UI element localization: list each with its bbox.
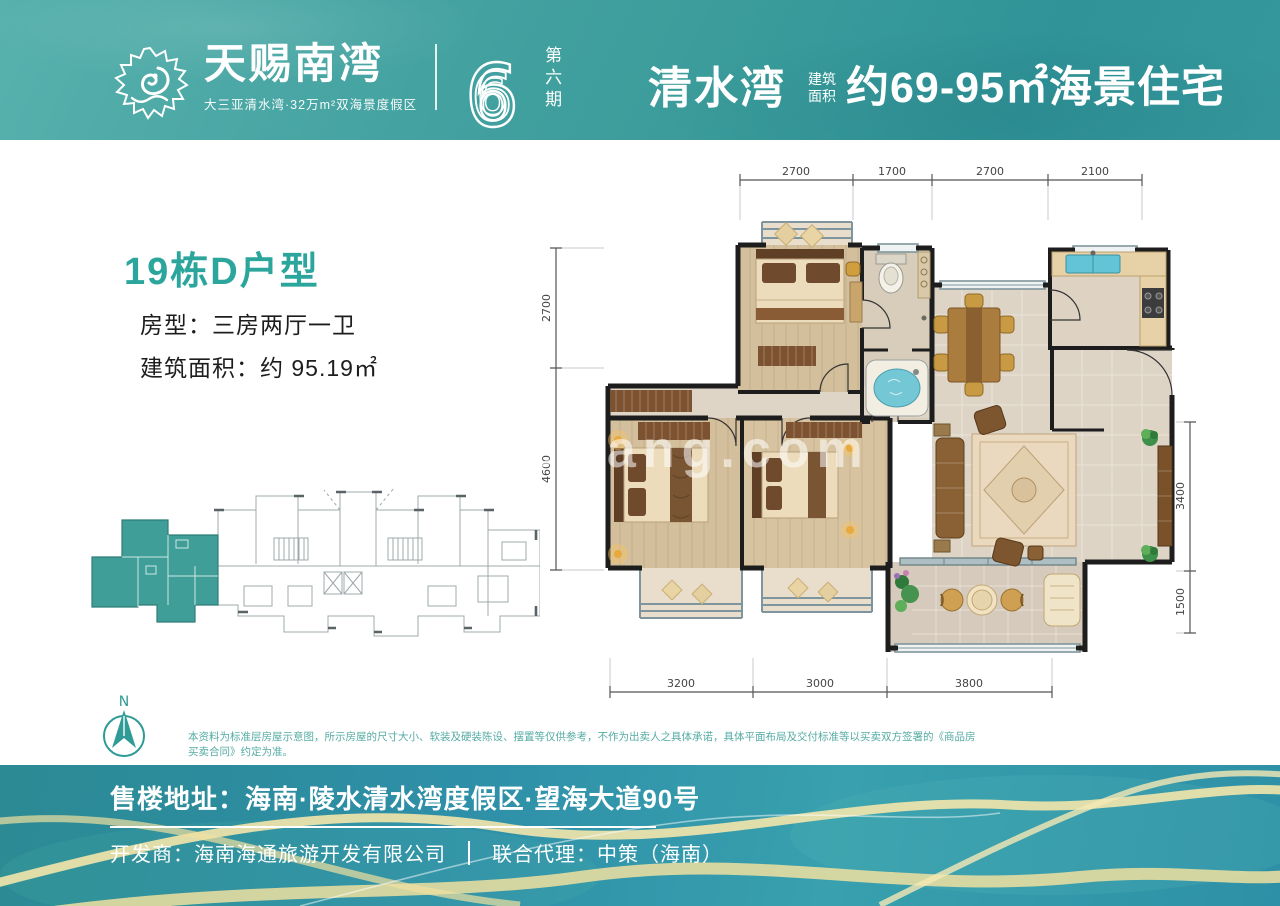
flyer-page: 天赐南湾 大三亚清水湾·32万m²双海景度假区 6 6 6 第六期 清水湾 建筑…	[0, 0, 1280, 906]
brand-divider	[435, 44, 437, 110]
dim-top-2: 1700	[878, 165, 906, 178]
dim-top-1: 2700	[782, 165, 810, 178]
svg-text:N: N	[119, 694, 129, 710]
agent-line: 联合代理：中策（海南）	[492, 838, 723, 867]
area-label-top: 建筑	[808, 71, 836, 88]
dim-left-2: 4600	[540, 455, 553, 483]
phase-label: 第六期	[539, 46, 564, 112]
brand-title: 天赐南湾	[204, 40, 417, 88]
dim-right-1: 3400	[1174, 482, 1187, 510]
unit-layout: 房型：三房两厅一卫	[140, 306, 356, 340]
brand-text: 天赐南湾 大三亚清水湾·32万m²双海景度假区	[204, 40, 417, 113]
footer-row2: 开发商：海南海通旅游开发有限公司 联合代理：中策（海南）	[110, 838, 723, 867]
dim-bottom-1: 3200	[667, 677, 695, 690]
footer-vertical-bar	[468, 841, 470, 865]
unit-title: 19栋D户型	[124, 240, 320, 295]
dim-left-1: 2700	[540, 294, 553, 322]
footer-band: 售楼地址：海南·陵水清水湾度假区·望海大道90号 开发商：海南海通旅游开发有限公…	[0, 765, 1280, 906]
disclaimer-text: 本资料为标准层房屋示意图，所示房屋的尺寸大小、软装及硬装陈设、摆置等仅供参考，不…	[188, 729, 978, 759]
sales-address: 售楼地址：海南·陵水清水湾度假区·望海大道90号	[110, 779, 723, 816]
floor-plan: 2700 1700 2700 2100 2700 4600 3400 1500 …	[520, 150, 1220, 710]
footer-rule	[110, 826, 656, 828]
dim-top-3: 2700	[976, 165, 1004, 178]
area-label-bottom: 面积	[808, 88, 836, 105]
headline-text: 约69-95㎡海景住宅	[846, 53, 1225, 115]
phase-number-six: 6 6 6	[451, 40, 533, 132]
header-banner: 天赐南湾 大三亚清水湾·32万m²双海景度假区 6 6 6 第六期 清水湾 建筑…	[0, 0, 1280, 140]
dim-bottom-2: 3000	[806, 677, 834, 690]
dragon-logo-icon	[108, 40, 192, 124]
brand-tagline: 大三亚清水湾·32万m²双海景度假区	[204, 94, 417, 113]
brand-block: 天赐南湾 大三亚清水湾·32万m²双海景度假区 6 6 6 第六期	[108, 40, 564, 132]
north-arrow-icon: N	[92, 690, 156, 762]
keyplan-highlighted-unit	[92, 520, 218, 622]
headline-location: 清水湾	[648, 52, 786, 116]
developer-line: 开发商：海南海通旅游开发有限公司	[110, 838, 446, 867]
headline-area-label: 建筑 面积	[808, 71, 836, 105]
building-keyplan	[88, 446, 540, 678]
dim-right-2: 1500	[1174, 588, 1187, 616]
dim-top-4: 2100	[1081, 165, 1109, 178]
dim-bottom-3: 3800	[955, 677, 983, 690]
unit-area: 建筑面积：约 95.19㎡	[140, 349, 378, 383]
header-headline: 清水湾 建筑 面积 约69-95㎡海景住宅	[648, 52, 1225, 116]
svg-text:6: 6	[477, 70, 508, 126]
footer-text-block: 售楼地址：海南·陵水清水湾度假区·望海大道90号 开发商：海南海通旅游开发有限公…	[110, 779, 723, 867]
